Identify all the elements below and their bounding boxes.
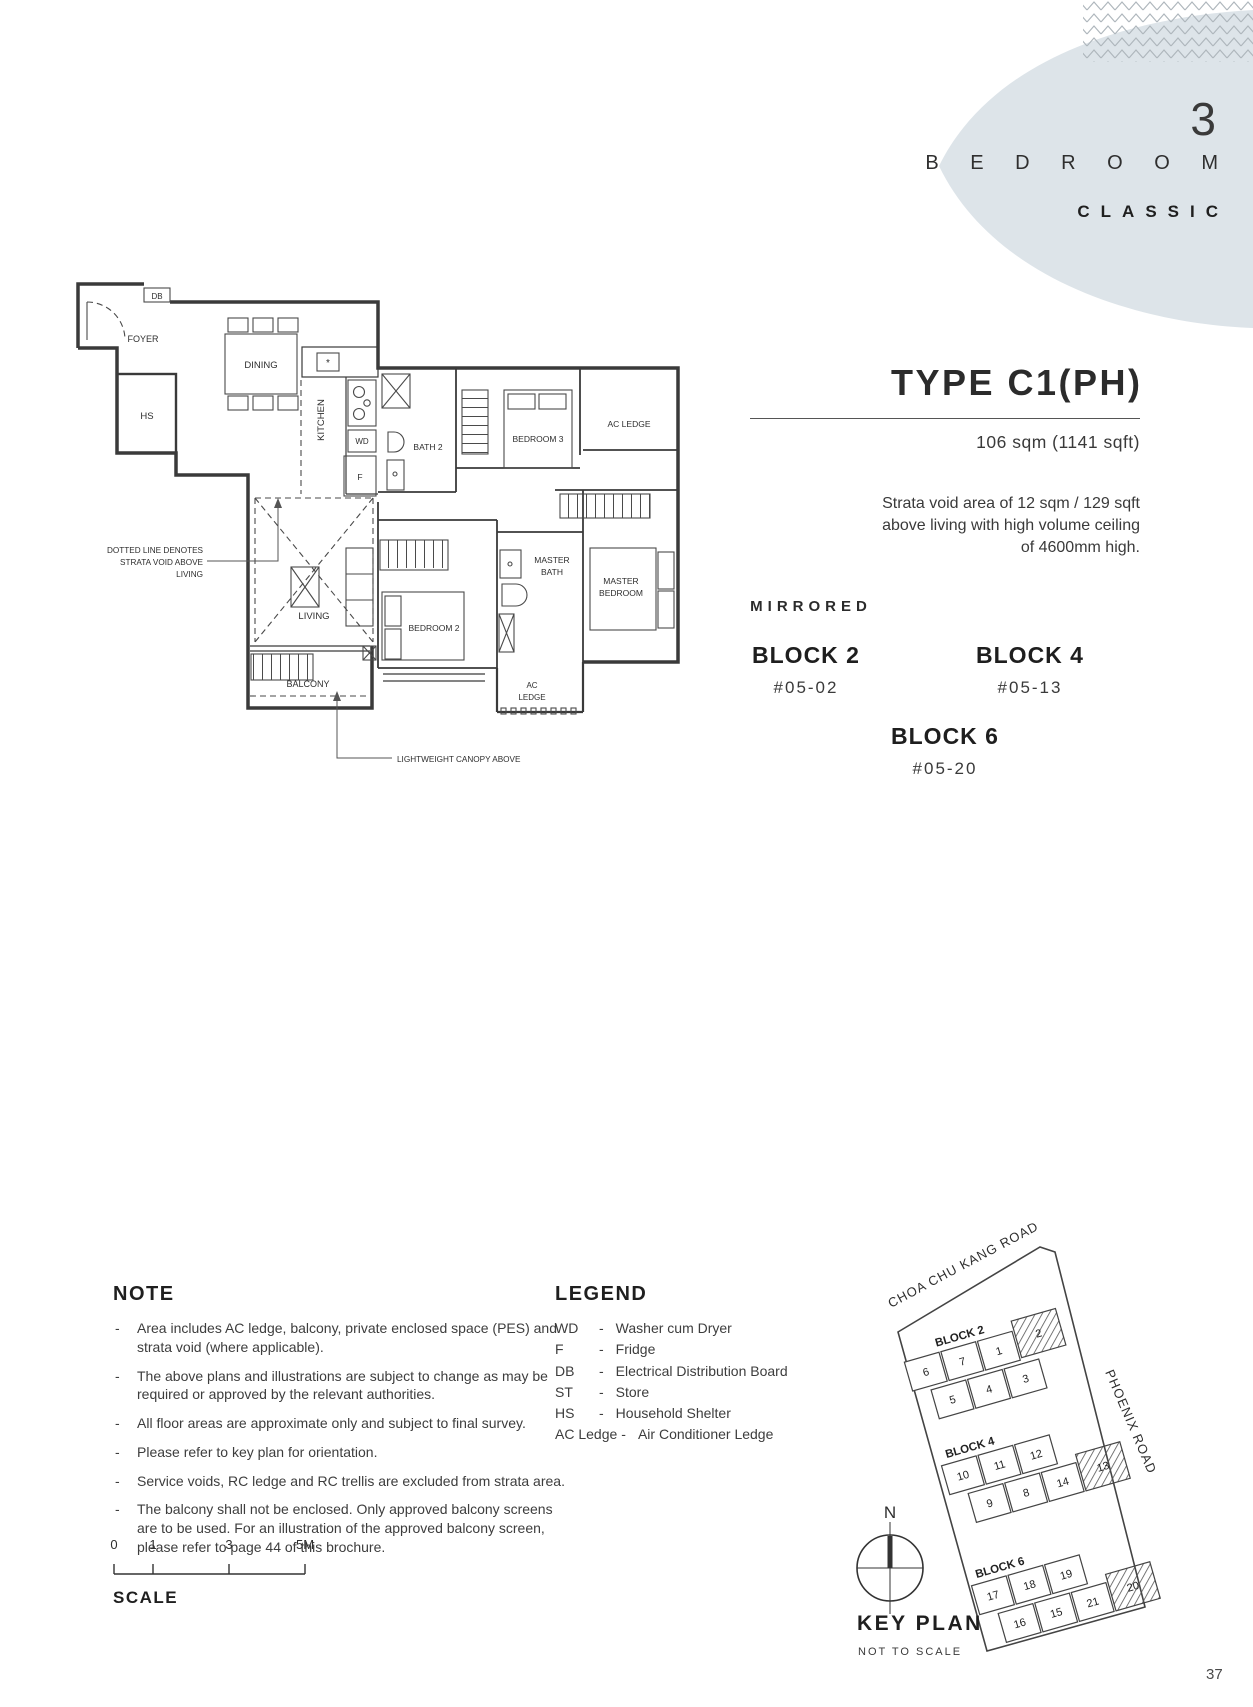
bedroom-word: B E D R O O M <box>925 152 1231 175</box>
key-plan-subheading: NOT TO SCALE <box>858 1646 962 1658</box>
scale-tick-5m: 5M <box>296 1537 314 1552</box>
unit-area: 106 sqm (1141 sqft) <box>640 432 1140 453</box>
note-item: -All floor areas are approximate only an… <box>113 1414 565 1433</box>
label-master-bedroom-1: MASTER <box>603 576 638 586</box>
plan-annotations: DOTTED LINE DENOTES STRATA VOID ABOVE LI… <box>107 546 521 764</box>
legend-separator: - <box>599 1339 604 1360</box>
block-6-unit-no: #05-20 <box>830 759 1060 779</box>
north-compass <box>857 1522 923 1614</box>
label-bedroom3: BEDROOM 3 <box>512 434 563 444</box>
block-6-card: BLOCK 6 #05-20 <box>830 723 1060 779</box>
legend-abbr: WD <box>555 1318 595 1339</box>
master-bath-fixtures <box>499 550 527 652</box>
legend-desc: Electrical Distribution Board <box>616 1361 788 1382</box>
scale-tick-1: 1 <box>149 1537 156 1552</box>
label-bedroom2: BEDROOM 2 <box>408 623 459 633</box>
legend-abbr: DB <box>555 1361 595 1382</box>
page-header: 3 B E D R O O M CLASSIC <box>925 96 1218 222</box>
bullet-dash: - <box>115 1472 120 1491</box>
style-word: CLASSIC <box>925 202 1229 222</box>
note-item-text: Service voids, RC ledge and RC trellis a… <box>137 1473 565 1489</box>
page-number: 37 <box>1206 1666 1223 1683</box>
legend-desc: Store <box>616 1382 649 1403</box>
bath2-fixtures <box>382 374 410 490</box>
north-label: N <box>884 1503 896 1522</box>
label-ac-bottom-1: AC <box>526 681 537 690</box>
legend-abbr: ST <box>555 1382 595 1403</box>
note-item-text: Please refer to key plan for orientation… <box>137 1444 377 1460</box>
scale-tick-3: 3 <box>225 1537 232 1552</box>
annotation-leaders <box>207 498 392 758</box>
strata-note: Strata void area of 12 sqm / 129 sqft ab… <box>640 493 1140 559</box>
scale-label: SCALE <box>113 1588 178 1608</box>
legend-desc: Washer cum Dryer <box>616 1318 732 1339</box>
scale-bar-line <box>114 1564 305 1574</box>
strata-line3: of 4600mm high. <box>640 537 1140 559</box>
note-item: -Please refer to key plan for orientatio… <box>113 1443 565 1462</box>
label-balcony: BALCONY <box>286 679 329 689</box>
scale-tick-0: 0 <box>110 1537 117 1552</box>
label-ac-bottom-2: LEDGE <box>518 693 545 702</box>
bedroom-count: 3 <box>925 96 1218 142</box>
block-2-unit-no: #05-02 <box>691 678 921 698</box>
bullet-dash: - <box>115 1500 120 1519</box>
strata-line1: Strata void area of 12 sqm / 129 sqft <box>640 493 1140 515</box>
label-db: DB <box>151 292 162 301</box>
label-master-bath-1: MASTER <box>534 555 569 565</box>
note-item-text: Area includes AC ledge, balcony, private… <box>137 1320 557 1355</box>
bullet-dash: - <box>115 1414 120 1433</box>
bullet-dash: - <box>115 1443 120 1462</box>
void-note-line3: LIVING <box>176 570 203 579</box>
label-sink: * <box>326 358 330 369</box>
void-note-line1: DOTTED LINE DENOTES <box>107 546 204 555</box>
note-item: -Area includes AC ledge, balcony, privat… <box>113 1319 565 1357</box>
title-underline <box>750 418 1140 419</box>
bedroom3-furniture <box>462 390 572 468</box>
note-item-text: All floor areas are approximate only and… <box>137 1415 526 1431</box>
legend-abbr: HS <box>555 1403 595 1424</box>
block-4-unit-no: #05-13 <box>915 678 1145 698</box>
key-plan-heading: KEY PLAN <box>857 1612 983 1636</box>
strata-line2: above living with high volume ceiling <box>640 515 1140 537</box>
label-foyer: FOYER <box>127 334 159 344</box>
bullet-dash: - <box>115 1367 120 1386</box>
keyplan-block-2: BLOCK 2 6 7 1 5 4 3 2 <box>900 1304 1076 1424</box>
label-f: F <box>357 472 362 482</box>
label-hs: HS <box>140 411 153 422</box>
legend-separator: - <box>621 1424 626 1445</box>
key-plan: CHOA CHU KANG ROAD PHOENIX ROAD N BLOCK … <box>783 1120 1253 1680</box>
brochure-page: { "page": { "number": "37" }, "header": … <box>0 0 1253 1707</box>
unit-info: TYPE C1(PH) 106 sqm (1141 sqft) Strata v… <box>640 362 1140 559</box>
note-item-text: The above plans and illustrations are su… <box>137 1368 548 1403</box>
keyplan-block-4: BLOCK 4 10 11 12 9 8 14 13 <box>937 1402 1130 1527</box>
note-item: -The above plans and illustrations are s… <box>113 1367 565 1405</box>
void-arrow <box>274 498 282 508</box>
road-label-top: CHOA CHU KANG ROAD <box>885 1218 1041 1310</box>
label-living: LIVING <box>298 611 329 622</box>
block-4-name: BLOCK 4 <box>915 642 1145 669</box>
note-heading: NOTE <box>113 1283 565 1306</box>
label-bath2: BATH 2 <box>413 442 442 452</box>
label-kitchen: KITCHEN <box>316 399 327 441</box>
legend-desc: Household Shelter <box>616 1403 731 1424</box>
zigzag-texture <box>1083 0 1253 62</box>
canopy-note: LIGHTWEIGHT CANOPY ABOVE <box>397 755 521 764</box>
void-note-line2: STRATA VOID ABOVE <box>120 558 203 567</box>
block-4-card: BLOCK 4 #05-13 <box>915 642 1145 698</box>
label-dining: DINING <box>244 360 277 371</box>
legend-separator: - <box>599 1382 604 1403</box>
note-item: -Service voids, RC ledge and RC trellis … <box>113 1472 565 1491</box>
legend-separator: - <box>599 1403 604 1424</box>
label-master-bedroom-2: BEDROOM <box>599 588 643 598</box>
note-list: -Area includes AC ledge, balcony, privat… <box>113 1319 565 1557</box>
legend-abbr: F <box>555 1339 595 1360</box>
bullet-dash: - <box>115 1319 120 1338</box>
legend-separator: - <box>599 1318 604 1339</box>
label-master-bath-2: BATH <box>541 567 563 577</box>
mirrored-label: MIRRORED <box>691 598 926 615</box>
note-section: NOTE -Area includes AC ledge, balcony, p… <box>113 1283 565 1567</box>
legend-desc: Air Conditioner Ledge <box>638 1424 773 1445</box>
legend-separator: - <box>599 1361 604 1382</box>
block-6-name: BLOCK 6 <box>830 723 1060 750</box>
unit-type-title: TYPE C1(PH) <box>640 362 1143 404</box>
bedroom2-furniture <box>380 540 464 660</box>
block-2-card: BLOCK 2 #05-02 <box>691 642 921 698</box>
keyplan-block-6: BLOCK 6 17 18 19 16 15 21 20 <box>967 1522 1160 1647</box>
label-wd: WD <box>355 437 369 446</box>
legend-desc: Fridge <box>616 1339 656 1360</box>
kitchen-fixtures <box>301 353 376 496</box>
legend-abbr: AC Ledge <box>555 1424 617 1445</box>
floor-plan: DB FOYER HS DINING KITCHEN * WD F BATH 2… <box>60 250 680 770</box>
block-2-name: BLOCK 2 <box>691 642 921 669</box>
scale-bar: 0 1 3 5M <box>108 1536 328 1584</box>
